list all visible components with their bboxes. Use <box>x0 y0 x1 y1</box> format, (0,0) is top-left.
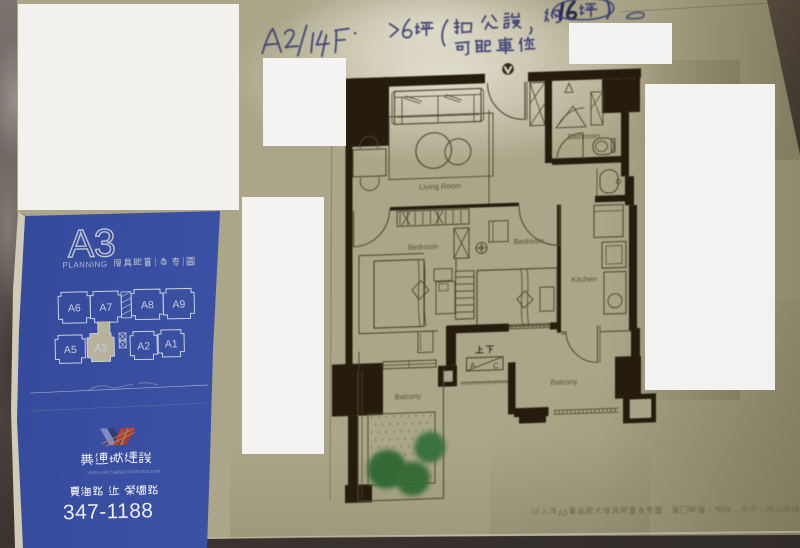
svg-text:XING LIAN CHENG CONSTRUCTION: XING LIAN CHENG CONSTRUCTION <box>87 469 160 476</box>
svg-text:Bedroom: Bedroom <box>408 242 438 252</box>
svg-text:Balcony: Balcony <box>551 377 578 387</box>
svg-text:A9: A9 <box>172 298 185 310</box>
svg-text:A5: A5 <box>64 344 77 356</box>
svg-text:Balcony: Balcony <box>395 391 422 401</box>
svg-text:C: C <box>493 361 499 370</box>
svg-text:A6: A6 <box>68 302 81 314</box>
svg-text:Living Room: Living Room <box>419 181 461 191</box>
svg-text:A3: A3 <box>94 342 107 354</box>
svg-text:A8: A8 <box>141 299 154 311</box>
svg-text:A: A <box>470 361 476 370</box>
svg-text:PLANNING: PLANNING <box>62 260 108 270</box>
svg-text:Bedroom: Bedroom <box>514 236 544 246</box>
svg-text:347-1188: 347-1188 <box>63 499 154 524</box>
svg-text:Kitchen: Kitchen <box>571 274 596 284</box>
svg-text:A1: A1 <box>165 338 178 350</box>
svg-text:A2: A2 <box>137 340 150 352</box>
svg-text:A3: A3 <box>558 509 568 518</box>
svg-text:A7: A7 <box>99 302 112 314</box>
svg-text:Bathroom: Bathroom <box>568 131 601 141</box>
